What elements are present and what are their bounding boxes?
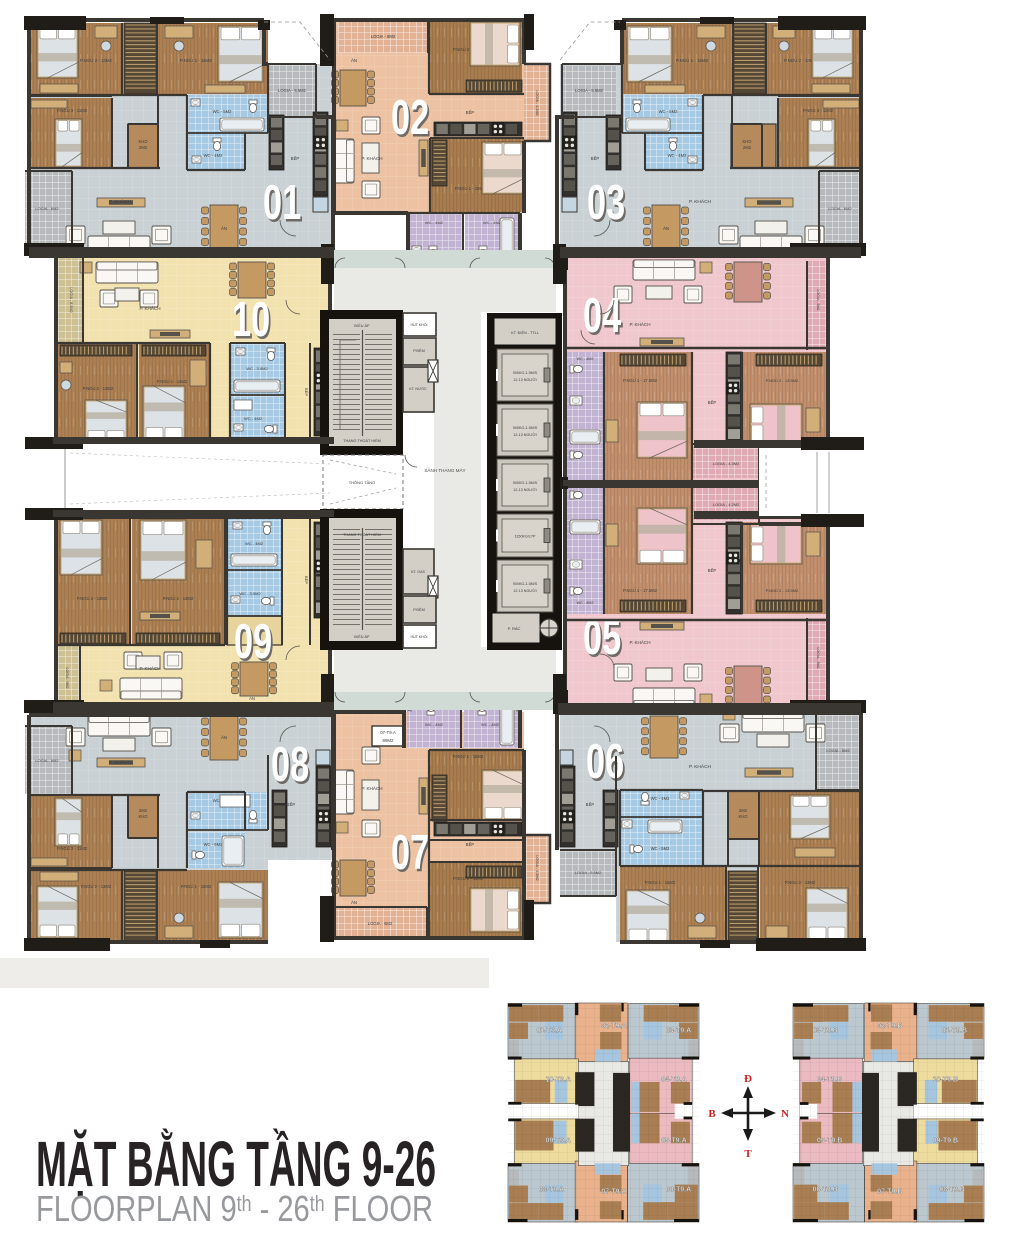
svg-text:05-T9.A: 05-T9.A bbox=[661, 1137, 686, 1144]
svg-text:10: 10 bbox=[232, 292, 270, 346]
svg-text:09-T9.B: 09-T9.B bbox=[933, 1137, 958, 1144]
svg-text:LOGIA - 6M2: LOGIA - 6M2 bbox=[371, 34, 396, 39]
svg-text:THANG THOÁT HIỂM: THANG THOÁT HIỂM bbox=[343, 438, 381, 443]
svg-text:WC - 4M2: WC - 4M2 bbox=[245, 541, 264, 546]
svg-text:03-T9.A: 03-T9.A bbox=[666, 1027, 691, 1034]
svg-text:12-13 NGƯỜI: 12-13 NGƯỜI bbox=[513, 487, 536, 492]
svg-text:WC - 3.5M2: WC - 3.5M2 bbox=[246, 366, 268, 371]
svg-text:LOGIA - 5M2: LOGIA - 5M2 bbox=[816, 290, 820, 311]
svg-text:ĂN: ĂN bbox=[663, 226, 669, 231]
svg-text:HÚT KHÓI: HÚT KHÓI bbox=[410, 322, 427, 327]
svg-text:07-T9.B: 07-T9.B bbox=[877, 1189, 902, 1196]
svg-text:05: 05 bbox=[583, 610, 621, 664]
svg-text:P. KHÁCH: P. KHÁCH bbox=[139, 305, 160, 311]
svg-text:BẾP: BẾP bbox=[466, 842, 475, 847]
svg-text:02: 02 bbox=[391, 90, 429, 144]
svg-text:KHO: KHO bbox=[138, 814, 148, 819]
svg-text:06-T9.A: 06-T9.A bbox=[666, 1186, 691, 1193]
svg-text:02-T9.A: 02-T9.A bbox=[601, 1023, 626, 1030]
svg-text:P.NGỦ 2 - 13M2: P.NGỦ 2 - 13M2 bbox=[81, 884, 112, 889]
svg-text:WC - 4M2: WC - 4M2 bbox=[668, 153, 688, 158]
svg-text:Đ: Đ bbox=[744, 1073, 752, 1085]
svg-text:ĐIỀU ÁP: ĐIỀU ÁP bbox=[354, 634, 370, 639]
svg-text:P.ĐỆM: P.ĐỆM bbox=[413, 607, 425, 612]
svg-text:2M2: 2M2 bbox=[743, 145, 752, 150]
svg-text:KT. ĐIỆN - TTLL: KT. ĐIỆN - TTLL bbox=[511, 330, 539, 335]
svg-text:LOGIA - 6M2: LOGIA - 6M2 bbox=[65, 668, 69, 689]
svg-text:P.NGỦ 1 - 15M2: P.NGỦ 1 - 15M2 bbox=[676, 58, 708, 63]
svg-text:P.NGỦ 2 - 13M2: P.NGỦ 2 - 13M2 bbox=[83, 386, 114, 391]
svg-text:P. RÁC: P. RÁC bbox=[508, 626, 521, 631]
svg-text:WC - 5M2: WC - 5M2 bbox=[659, 109, 679, 114]
svg-text:LOGIA - 4.5M2: LOGIA - 4.5M2 bbox=[535, 855, 539, 880]
svg-text:ĂN: ĂN bbox=[249, 696, 255, 701]
svg-text:89M2: 89M2 bbox=[383, 738, 395, 743]
svg-text:900KG-1.5M/S: 900KG-1.5M/S bbox=[513, 481, 538, 485]
svg-text:B: B bbox=[708, 1108, 716, 1120]
svg-text:LOGIA - 5.5M2: LOGIA - 5.5M2 bbox=[575, 870, 602, 875]
svg-text:WC - 5M2: WC - 5M2 bbox=[651, 846, 671, 851]
svg-text:10-T9.A: 10-T9.A bbox=[546, 1077, 571, 1084]
svg-text:WC - 4M2: WC - 4M2 bbox=[483, 220, 502, 225]
svg-text:04: 04 bbox=[583, 288, 622, 342]
svg-text:BẾP: BẾP bbox=[291, 156, 300, 161]
svg-text:12-13 NGƯỜI: 12-13 NGƯỜI bbox=[513, 377, 536, 382]
svg-text:04-T9.A: 04-T9.A bbox=[661, 1077, 686, 1084]
svg-text:KHO: KHO bbox=[138, 139, 148, 144]
svg-text:KT. GAS: KT. GAS bbox=[411, 570, 425, 574]
svg-text:P.NGỦ 1 - 15M2: P.NGỦ 1 - 15M2 bbox=[645, 880, 676, 885]
svg-text:P.NGỦ 3 - 11M2: P.NGỦ 3 - 11M2 bbox=[57, 846, 88, 851]
svg-text:LOGIA - 6M2: LOGIA - 6M2 bbox=[826, 748, 850, 753]
svg-text:LOGIA - 6M2: LOGIA - 6M2 bbox=[35, 206, 59, 211]
svg-text:12-13 NGƯỜI: 12-13 NGƯỜI bbox=[513, 588, 536, 593]
svg-text:N: N bbox=[781, 1108, 789, 1120]
svg-text:P.ĐỆM: P.ĐỆM bbox=[413, 348, 425, 353]
svg-text:BẾP: BẾP bbox=[708, 568, 717, 573]
svg-text:WC - 4M2: WC - 4M2 bbox=[425, 722, 444, 727]
svg-text:08: 08 bbox=[271, 737, 309, 791]
svg-text:P.NGỦ 3 - 11M2: P.NGỦ 3 - 11M2 bbox=[803, 108, 834, 113]
svg-text:P.NGỦ 1 - 17.5M2: P.NGỦ 1 - 17.5M2 bbox=[623, 378, 658, 383]
svg-text:LOGIA - 8.5M2: LOGIA - 8.5M2 bbox=[69, 287, 73, 312]
svg-text:04-T9.B: 04-T9.B bbox=[817, 1077, 842, 1084]
svg-text:P.NGỦ 1 - 15M2: P.NGỦ 1 - 15M2 bbox=[453, 754, 484, 759]
svg-text:KT. NƯỚC: KT. NƯỚC bbox=[409, 386, 427, 391]
svg-text:2M2: 2M2 bbox=[139, 145, 148, 150]
svg-text:P.NGỦ 1 - 15M2: P.NGỦ 1 - 15M2 bbox=[180, 58, 212, 63]
svg-text:07: 07 bbox=[391, 825, 429, 879]
svg-text:ĂN: ĂN bbox=[221, 226, 227, 231]
svg-text:SẢNH THANG MÁY: SẢNH THANG MÁY bbox=[424, 467, 465, 473]
svg-text:P. KHÁCH: P. KHÁCH bbox=[689, 763, 712, 770]
svg-text:P. KHÁCH: P. KHÁCH bbox=[109, 759, 132, 766]
svg-text:P.NGỦ 2 - 13.5M2: P.NGỦ 2 - 13.5M2 bbox=[766, 588, 799, 593]
svg-text:WC - 5M2: WC - 5M2 bbox=[204, 842, 224, 847]
svg-text:P.NGỦ 1 - 15M2: P.NGỦ 1 - 15M2 bbox=[181, 884, 212, 889]
svg-text:WC - 4M2: WC - 4M2 bbox=[481, 722, 500, 727]
svg-text:LOGIA - 4.3M2: LOGIA - 4.3M2 bbox=[713, 461, 740, 466]
svg-text:ĂN: ĂN bbox=[351, 900, 357, 905]
svg-text:WC - 4M2: WC - 4M2 bbox=[576, 601, 593, 605]
svg-text:WC - 4M2: WC - 4M2 bbox=[244, 416, 263, 421]
svg-text:10-T9.B: 10-T9.B bbox=[933, 1077, 958, 1084]
svg-text:01: 01 bbox=[263, 175, 301, 229]
svg-text:WC - 4M2: WC - 4M2 bbox=[204, 153, 224, 158]
svg-text:P.NGỦ 2 - 13M2: P.NGỦ 2 - 13M2 bbox=[80, 58, 112, 63]
svg-text:P. KHÁCH: P. KHÁCH bbox=[361, 785, 382, 791]
svg-text:LOGIA - 5.5M2: LOGIA - 5.5M2 bbox=[278, 88, 307, 93]
svg-text:LOGIA - 6M2: LOGIA - 6M2 bbox=[35, 758, 59, 763]
svg-text:BẾP: BẾP bbox=[591, 156, 600, 161]
svg-text:P.NGỦ 2 - 13M2: P.NGỦ 2 - 13M2 bbox=[785, 880, 816, 885]
svg-text:LOGIA - 5M2: LOGIA - 5M2 bbox=[816, 648, 820, 669]
svg-text:LOGIA - 6M2: LOGIA - 6M2 bbox=[828, 206, 852, 211]
svg-text:BẾP: BẾP bbox=[466, 110, 475, 115]
svg-text:P.NGỦ 1 - 15M2: P.NGỦ 1 - 15M2 bbox=[455, 186, 486, 191]
svg-text:06-T9.B: 06-T9.B bbox=[813, 1186, 838, 1193]
svg-text:LOGIA - 6M2: LOGIA - 6M2 bbox=[368, 921, 393, 926]
svg-text:900KG-1.5M/S: 900KG-1.5M/S bbox=[513, 371, 538, 375]
svg-text:01-T9.A: 01-T9.A bbox=[537, 1027, 562, 1034]
svg-text:03: 03 bbox=[587, 175, 625, 229]
svg-text:FLOORPLAN 9th - 26th FLOOR: FLOORPLAN 9th - 26th FLOOR bbox=[36, 1188, 433, 1229]
svg-text:THANG THOÁT HIỂM: THANG THOÁT HIỂM bbox=[343, 532, 381, 537]
svg-text:WC - 4M2: WC - 4M2 bbox=[576, 357, 593, 361]
svg-text:P. KHÁCH: P. KHÁCH bbox=[689, 198, 712, 205]
svg-text:KHO: KHO bbox=[738, 814, 748, 819]
svg-text:BẾP: BẾP bbox=[304, 388, 309, 396]
svg-text:KHO: KHO bbox=[742, 139, 752, 144]
svg-text:WC - 4M2: WC - 4M2 bbox=[651, 796, 671, 801]
svg-text:2M2: 2M2 bbox=[139, 808, 148, 813]
svg-text:WC - 4M2: WC - 4M2 bbox=[425, 220, 444, 225]
svg-text:P.NGỦ 1 - 14M2: P.NGỦ 1 - 14M2 bbox=[157, 379, 188, 384]
svg-text:LOGIA - 4.2M2: LOGIA - 4.2M2 bbox=[535, 90, 539, 115]
svg-text:BẾP: BẾP bbox=[304, 576, 309, 584]
svg-text:08-T9.B: 08-T9.B bbox=[940, 1186, 965, 1193]
svg-text:P.NGỦ 1 - 17.5M2: P.NGỦ 1 - 17.5M2 bbox=[623, 588, 658, 593]
svg-text:P. KHÁCH: P. KHÁCH bbox=[109, 198, 132, 205]
svg-text:HÚT KHÓI: HÚT KHÓI bbox=[410, 634, 427, 639]
svg-text:ĐIỀU ÁP: ĐIỀU ÁP bbox=[354, 323, 370, 328]
svg-text:08-T9.A: 08-T9.A bbox=[539, 1186, 564, 1193]
svg-text:09: 09 bbox=[234, 614, 272, 668]
svg-text:P. KHÁCH: P. KHÁCH bbox=[629, 639, 650, 645]
svg-text:P.NGỦ 1 - 14M2: P.NGỦ 1 - 14M2 bbox=[163, 596, 194, 601]
svg-text:900KG-1.5M/S: 900KG-1.5M/S bbox=[513, 426, 538, 430]
svg-text:P.NGỦ 2 - 13M2: P.NGỦ 2 - 13M2 bbox=[77, 596, 108, 601]
svg-text:T: T bbox=[744, 1148, 752, 1160]
svg-text:THÔNG TẦNG: THÔNG TẦNG bbox=[349, 480, 376, 485]
svg-text:BẾP: BẾP bbox=[287, 802, 296, 807]
svg-text:07-T9.A: 07-T9.A bbox=[380, 730, 396, 735]
svg-text:WC - 3.5M2: WC - 3.5M2 bbox=[239, 591, 261, 596]
svg-text:2M2: 2M2 bbox=[739, 808, 748, 813]
svg-text:ĂN: ĂN bbox=[351, 58, 357, 63]
svg-text:WC - 5M2: WC - 5M2 bbox=[213, 109, 233, 114]
svg-text:P. KHÁCH: P. KHÁCH bbox=[361, 155, 382, 161]
svg-text:LOGIA - 4.2M2: LOGIA - 4.2M2 bbox=[713, 502, 740, 507]
svg-text:06: 06 bbox=[586, 734, 624, 788]
svg-text:02-T9.B: 02-T9.B bbox=[877, 1023, 902, 1030]
svg-text:900KG-1.5M/S: 900KG-1.5M/S bbox=[513, 582, 538, 586]
svg-text:01-T9.B: 01-T9.B bbox=[942, 1027, 967, 1034]
svg-text:05-T9.B: 05-T9.B bbox=[817, 1137, 842, 1144]
svg-text:1150KG/17P: 1150KG/17P bbox=[515, 535, 536, 539]
svg-text:07-T9.A: 07-T9.A bbox=[601, 1189, 626, 1196]
svg-text:LOGIA - 5.5M2: LOGIA - 5.5M2 bbox=[575, 88, 604, 93]
svg-text:P. KHÁCH: P. KHÁCH bbox=[629, 321, 650, 327]
svg-text:P.NGỦ 3 - 11M2: P.NGỦ 3 - 11M2 bbox=[57, 108, 88, 113]
svg-text:BẾP: BẾP bbox=[708, 400, 717, 405]
svg-text:09-T9.A: 09-T9.A bbox=[546, 1137, 571, 1144]
svg-text:03-T9.B: 03-T9.B bbox=[813, 1027, 838, 1034]
svg-text:ĂN: ĂN bbox=[221, 735, 227, 740]
svg-text:P.NGỦ 2 - 13.5M2: P.NGỦ 2 - 13.5M2 bbox=[766, 378, 799, 383]
svg-text:BẾP: BẾP bbox=[586, 802, 595, 807]
svg-text:P. KHÁCH: P. KHÁCH bbox=[139, 665, 160, 671]
svg-text:12-13 NGƯỜI: 12-13 NGƯỜI bbox=[513, 432, 536, 437]
